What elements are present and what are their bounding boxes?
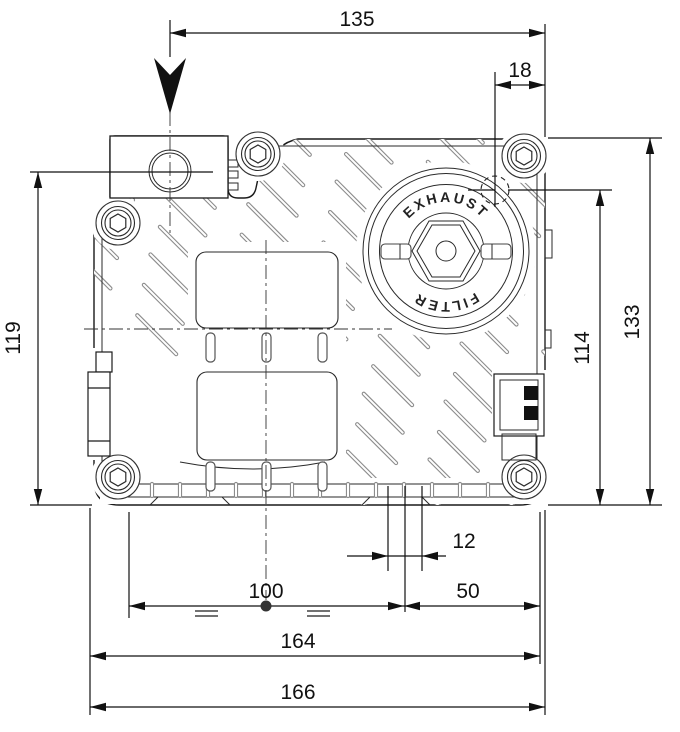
inlet-block [110,136,238,198]
dim-overall-width-label: 166 [280,681,315,704]
edge-tab [545,230,552,258]
technical-drawing-canvas: EXHAUST FILTER [0,0,680,732]
cooling-rib [532,118,680,588]
dim-overall-width: 166 [90,681,545,711]
cooling-rib [606,118,680,588]
dim-right-mount-offset-label: 50 [456,580,479,603]
corner-bolt [96,455,140,499]
cooling-rib [606,118,680,588]
cooling-rib [643,118,680,588]
dim-top-width: 135 [170,8,545,37]
dim-foot-slot-label: 12 [452,530,475,553]
dim-mount-width-label: 164 [280,630,315,653]
dim-right-height-label: 133 [621,304,644,339]
dim-right-inner-height-label: 114 [571,331,594,365]
bolt-ring [508,461,541,494]
connector-pin [524,406,538,420]
dim-exhaust-offset: 18 [495,59,545,89]
dim-right-mount-offset: 50 [404,580,540,610]
flow-direction-arrow [154,58,186,114]
connector-pin [524,386,538,400]
corner-bolt [96,201,140,245]
edge-tab [545,330,551,348]
dim-exhaust-offset-label: 18 [508,59,531,82]
bolt-ring [242,138,275,171]
pump-dimension-drawing: EXHAUST FILTER [0,0,680,732]
cooling-rib [532,118,680,588]
dim-right-height: 133 [621,138,654,505]
corner-bolt [236,132,280,176]
dim-mount-width: 164 [90,630,540,660]
bolt-ring [508,140,541,173]
dim-foot-slot: 12 [347,530,476,560]
corner-bolt [502,134,546,178]
corner-bolt [502,455,546,499]
nameplate-recess-lower [197,372,337,460]
nameplate-recess-upper [196,252,338,328]
dim-top-width-label: 135 [339,8,374,31]
cooling-rib [643,118,680,588]
dim-right-inner-height: 114 [571,190,604,505]
dim-left-height-label: 119 [2,321,25,354]
bolt-ring [102,207,135,240]
dim-mount-spacing: 100 [129,580,404,616]
symmetry-marks [195,611,330,616]
bolt-ring [102,461,135,494]
dim-mount-spacing-label: 100 [248,580,283,603]
dim-left-height: 119 [2,172,42,505]
